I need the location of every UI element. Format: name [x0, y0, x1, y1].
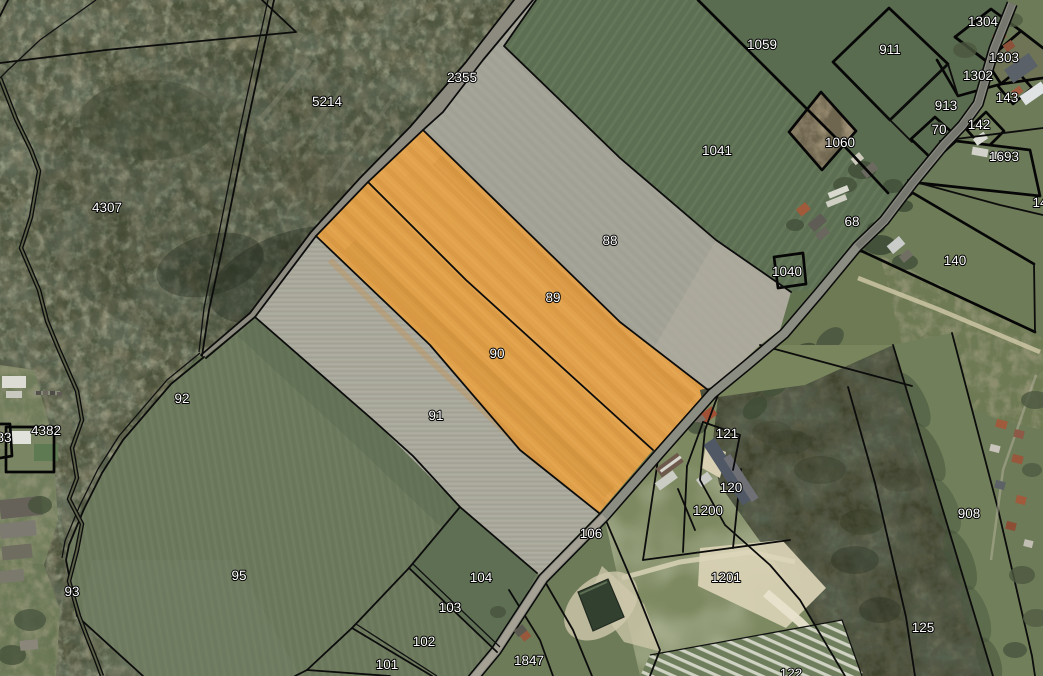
svg-text:1201: 1201	[711, 570, 741, 585]
svg-text:88: 88	[602, 233, 617, 248]
svg-text:143: 143	[996, 90, 1019, 105]
svg-text:90: 90	[489, 346, 504, 361]
svg-text:1060: 1060	[825, 135, 855, 150]
svg-text:1693: 1693	[989, 149, 1019, 164]
svg-text:140: 140	[944, 253, 967, 268]
svg-text:4382: 4382	[31, 423, 61, 438]
svg-text:101: 101	[376, 657, 399, 672]
svg-text:83: 83	[0, 430, 12, 445]
svg-text:70: 70	[931, 122, 946, 137]
svg-text:91: 91	[428, 408, 443, 423]
svg-text:911: 911	[879, 42, 901, 57]
svg-text:4307: 4307	[92, 200, 122, 215]
svg-text:89: 89	[545, 290, 560, 305]
svg-text:125: 125	[912, 620, 935, 635]
svg-text:1200: 1200	[693, 503, 723, 518]
svg-text:1041: 1041	[702, 143, 732, 158]
svg-text:121: 121	[716, 426, 739, 441]
svg-text:1303: 1303	[989, 50, 1019, 65]
svg-text:908: 908	[958, 506, 981, 521]
svg-text:142: 142	[968, 117, 991, 132]
svg-text:120: 120	[720, 480, 743, 495]
svg-text:122: 122	[780, 666, 803, 676]
svg-text:2355: 2355	[447, 70, 477, 85]
svg-text:1040: 1040	[772, 264, 802, 279]
svg-text:14: 14	[1032, 195, 1043, 210]
svg-text:95: 95	[231, 568, 246, 583]
svg-text:1302: 1302	[963, 68, 993, 83]
svg-text:1304: 1304	[968, 14, 999, 29]
svg-text:106: 106	[580, 526, 603, 541]
svg-text:5214: 5214	[312, 94, 343, 109]
svg-text:92: 92	[174, 391, 189, 406]
svg-text:103: 103	[439, 600, 462, 615]
svg-text:1847: 1847	[514, 653, 544, 668]
svg-text:913: 913	[935, 98, 958, 113]
svg-text:1059: 1059	[747, 37, 777, 52]
svg-text:102: 102	[413, 634, 436, 649]
svg-text:68: 68	[844, 214, 859, 229]
svg-text:104: 104	[470, 570, 493, 585]
svg-text:93: 93	[64, 584, 79, 599]
